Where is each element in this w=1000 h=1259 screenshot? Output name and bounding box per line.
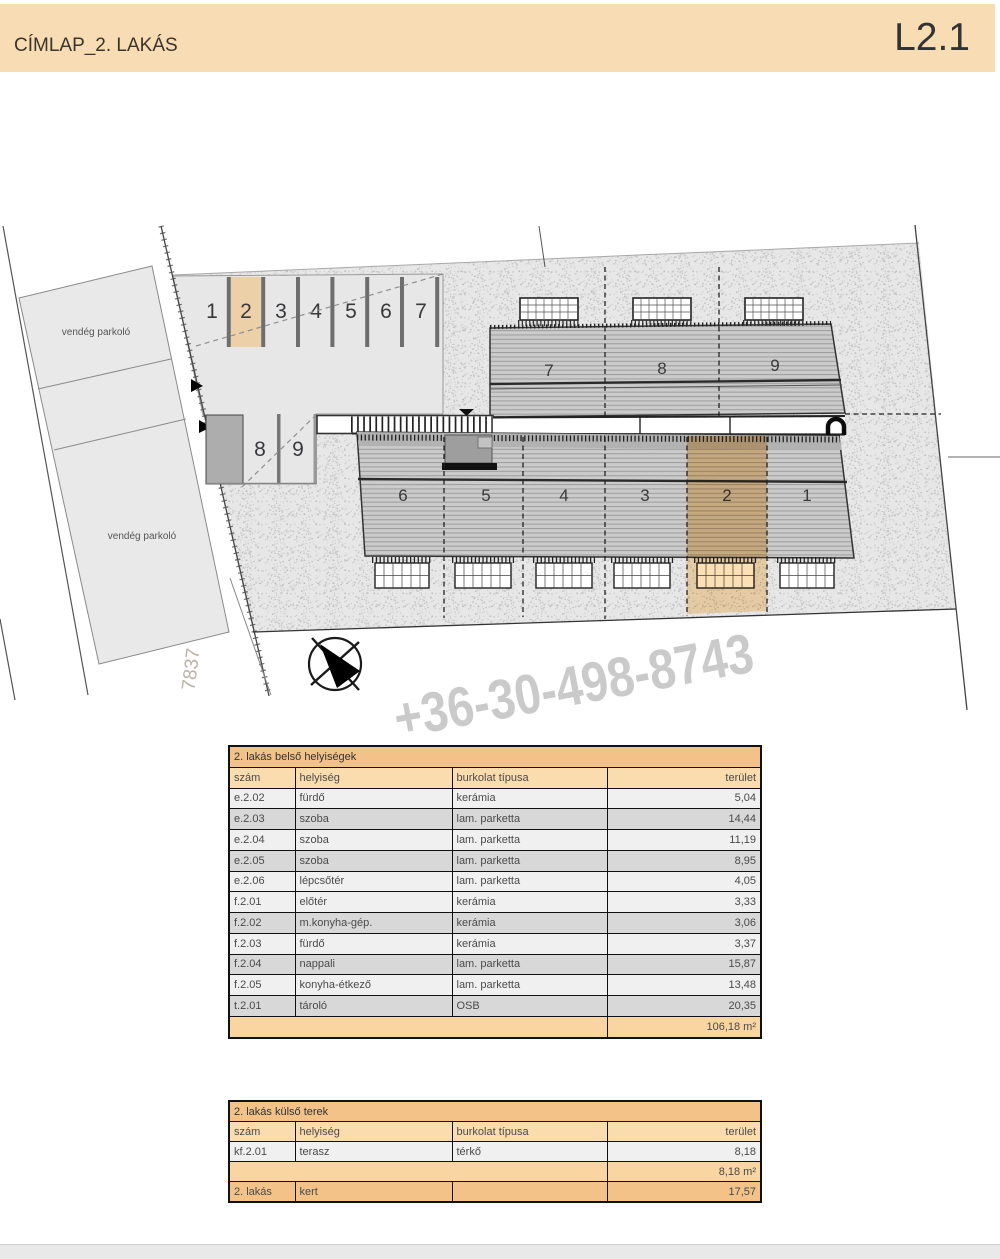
svg-text:8: 8 <box>657 359 666 378</box>
svg-text:8: 8 <box>254 438 266 461</box>
svg-text:3: 3 <box>640 486 649 505</box>
svg-text:vendég parkoló: vendég parkoló <box>108 531 177 542</box>
svg-text:6: 6 <box>398 486 407 505</box>
svg-text:5: 5 <box>481 486 490 505</box>
svg-text:7: 7 <box>544 361 553 380</box>
svg-text:4: 4 <box>310 300 322 323</box>
svg-text:1: 1 <box>206 300 218 323</box>
svg-text:9: 9 <box>770 356 779 375</box>
svg-text:7837: 7837 <box>179 647 205 692</box>
svg-text:1: 1 <box>802 486 811 505</box>
svg-text:5: 5 <box>345 300 357 323</box>
svg-text:+36-30-498-8743: +36-30-498-8743 <box>389 621 759 750</box>
svg-text:4: 4 <box>559 486 568 505</box>
svg-text:6: 6 <box>380 300 392 323</box>
svg-text:9: 9 <box>292 438 304 461</box>
svg-text:2: 2 <box>240 300 252 323</box>
svg-text:7: 7 <box>415 300 427 323</box>
svg-text:vendég parkoló: vendég parkoló <box>62 327 131 338</box>
